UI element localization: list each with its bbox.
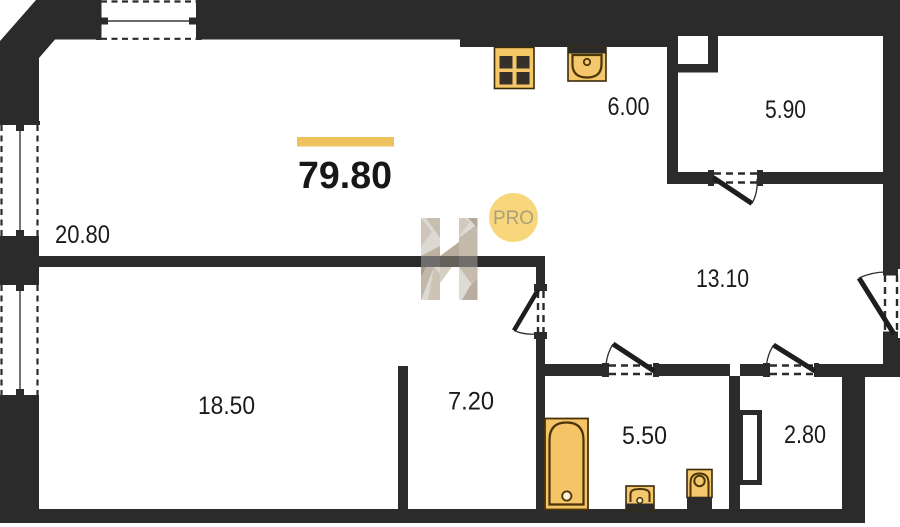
svg-text:7.20: 7.20 <box>448 388 494 416</box>
svg-text:2.80: 2.80 <box>784 421 826 449</box>
svg-text:PRO: PRO <box>493 208 534 229</box>
svg-text:6.00: 6.00 <box>608 93 650 121</box>
svg-text:13.10: 13.10 <box>696 265 749 293</box>
svg-text:5.90: 5.90 <box>765 96 806 124</box>
svg-text:79.80: 79.80 <box>298 155 392 197</box>
svg-text:18.50: 18.50 <box>198 392 255 420</box>
svg-text:5.50: 5.50 <box>622 422 667 450</box>
svg-text:20.80: 20.80 <box>55 221 110 249</box>
